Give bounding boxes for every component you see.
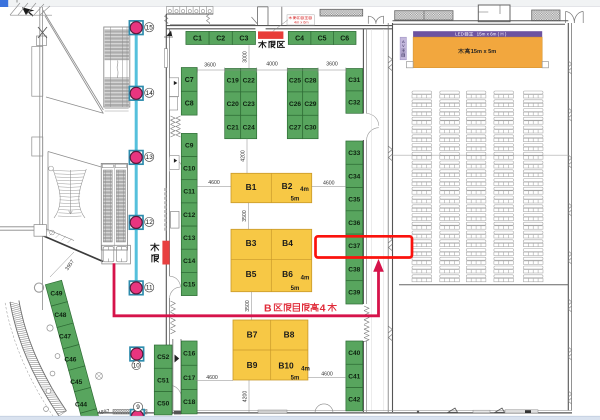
svg-text:15m x 6m ( H ): 15m x 6m ( H ) xyxy=(477,32,507,37)
svg-text:3500: 3500 xyxy=(245,300,251,312)
svg-text:C46: C46 xyxy=(64,357,76,364)
svg-text:LED: LED xyxy=(455,32,465,37)
svg-text:B10: B10 xyxy=(278,361,294,371)
svg-text:5m: 5m xyxy=(291,286,300,292)
svg-text:C3: C3 xyxy=(239,36,248,43)
svg-text:C44: C44 xyxy=(75,401,87,408)
svg-text:C6: C6 xyxy=(340,36,349,43)
svg-text:5m: 5m xyxy=(291,376,300,382)
svg-text:C23: C23 xyxy=(243,101,255,108)
svg-text:B7: B7 xyxy=(247,330,258,340)
svg-text:C47: C47 xyxy=(59,333,71,340)
svg-text:B9: B9 xyxy=(247,360,258,370)
svg-text:B1: B1 xyxy=(246,182,257,192)
svg-text:C7: C7 xyxy=(185,77,194,84)
svg-text:4m: 4m xyxy=(300,187,309,193)
svg-text:3000: 3000 xyxy=(242,51,248,63)
svg-text:C24: C24 xyxy=(243,124,255,131)
svg-text:C38: C38 xyxy=(348,266,360,273)
svg-text:4600: 4600 xyxy=(321,372,333,378)
svg-text:C14: C14 xyxy=(183,258,195,265)
svg-text:3600: 3600 xyxy=(326,61,338,67)
svg-text:3500: 3500 xyxy=(242,210,248,222)
svg-text:C15: C15 xyxy=(183,281,195,288)
svg-text:4: 4 xyxy=(320,303,326,315)
svg-text:C42: C42 xyxy=(348,397,360,404)
svg-text:11: 11 xyxy=(146,285,153,292)
svg-text:4600: 4600 xyxy=(323,181,335,187)
svg-text:B: B xyxy=(264,303,272,315)
svg-text:4600: 4600 xyxy=(206,375,218,381)
svg-text:C18: C18 xyxy=(183,399,195,406)
svg-text:C27: C27 xyxy=(289,124,301,131)
svg-text:4m: 4m xyxy=(301,367,310,373)
svg-text:C48: C48 xyxy=(54,312,66,319)
svg-text:C41: C41 xyxy=(348,373,360,380)
svg-text:C34: C34 xyxy=(348,173,360,180)
svg-text:C45: C45 xyxy=(70,379,82,386)
svg-text:C2: C2 xyxy=(216,36,225,43)
svg-text:C51: C51 xyxy=(157,377,169,384)
svg-text:C29: C29 xyxy=(304,101,316,108)
svg-text:C17: C17 xyxy=(183,375,195,382)
svg-text:C16: C16 xyxy=(183,351,195,358)
svg-text:V: V xyxy=(402,43,405,48)
svg-text:C37: C37 xyxy=(348,243,360,250)
svg-text:C31: C31 xyxy=(348,77,360,84)
svg-text:C39: C39 xyxy=(348,290,360,297)
svg-text:C19: C19 xyxy=(227,78,239,85)
svg-text:C36: C36 xyxy=(348,220,360,227)
svg-text:13: 13 xyxy=(146,154,154,161)
svg-text:C22: C22 xyxy=(243,78,255,85)
svg-text:4600: 4600 xyxy=(208,180,220,186)
svg-text:C25: C25 xyxy=(289,78,301,85)
svg-text:B5: B5 xyxy=(246,269,257,279)
svg-text:B6: B6 xyxy=(282,269,293,279)
svg-text:12: 12 xyxy=(146,219,154,226)
svg-text:B4: B4 xyxy=(282,238,293,248)
svg-text:14: 14 xyxy=(146,90,154,97)
svg-text:5m: 5m xyxy=(291,197,300,203)
svg-text:C28: C28 xyxy=(304,78,316,85)
svg-text:C52: C52 xyxy=(157,354,169,361)
svg-text:15m x 5m: 15m x 5m xyxy=(471,49,497,55)
svg-text:4m x 6m: 4m x 6m xyxy=(294,20,309,24)
svg-text:15: 15 xyxy=(146,24,154,31)
svg-text:B2: B2 xyxy=(282,181,293,191)
svg-text:4200: 4200 xyxy=(242,391,248,403)
svg-text:B8: B8 xyxy=(284,330,295,340)
svg-text:B3: B3 xyxy=(246,238,257,248)
svg-text:C32: C32 xyxy=(348,100,360,107)
svg-text:3600: 3600 xyxy=(204,62,216,68)
svg-text:C11: C11 xyxy=(183,189,195,196)
svg-text:C20: C20 xyxy=(227,101,239,108)
svg-text:4m: 4m xyxy=(301,276,310,282)
svg-text:C40: C40 xyxy=(348,350,360,357)
svg-text:C5: C5 xyxy=(318,36,327,43)
svg-text:C1: C1 xyxy=(193,36,202,43)
svg-text:4000: 4000 xyxy=(266,61,278,67)
svg-text:C13: C13 xyxy=(183,235,195,242)
svg-text:C8: C8 xyxy=(185,101,194,108)
svg-text:C10: C10 xyxy=(183,166,195,173)
svg-text:10: 10 xyxy=(133,362,140,369)
svg-text:C33: C33 xyxy=(348,150,360,157)
svg-text:9: 9 xyxy=(136,404,140,411)
svg-text:C21: C21 xyxy=(227,124,239,131)
svg-text:C35: C35 xyxy=(348,197,360,204)
svg-text:C30: C30 xyxy=(304,124,316,131)
svg-text:C4: C4 xyxy=(295,36,304,43)
svg-text:C12: C12 xyxy=(183,212,195,219)
svg-text:C26: C26 xyxy=(289,101,301,108)
svg-text:C49: C49 xyxy=(50,291,62,298)
svg-text:C50: C50 xyxy=(157,401,169,408)
svg-text:4200: 4200 xyxy=(240,150,246,162)
svg-text:C9: C9 xyxy=(185,142,194,149)
